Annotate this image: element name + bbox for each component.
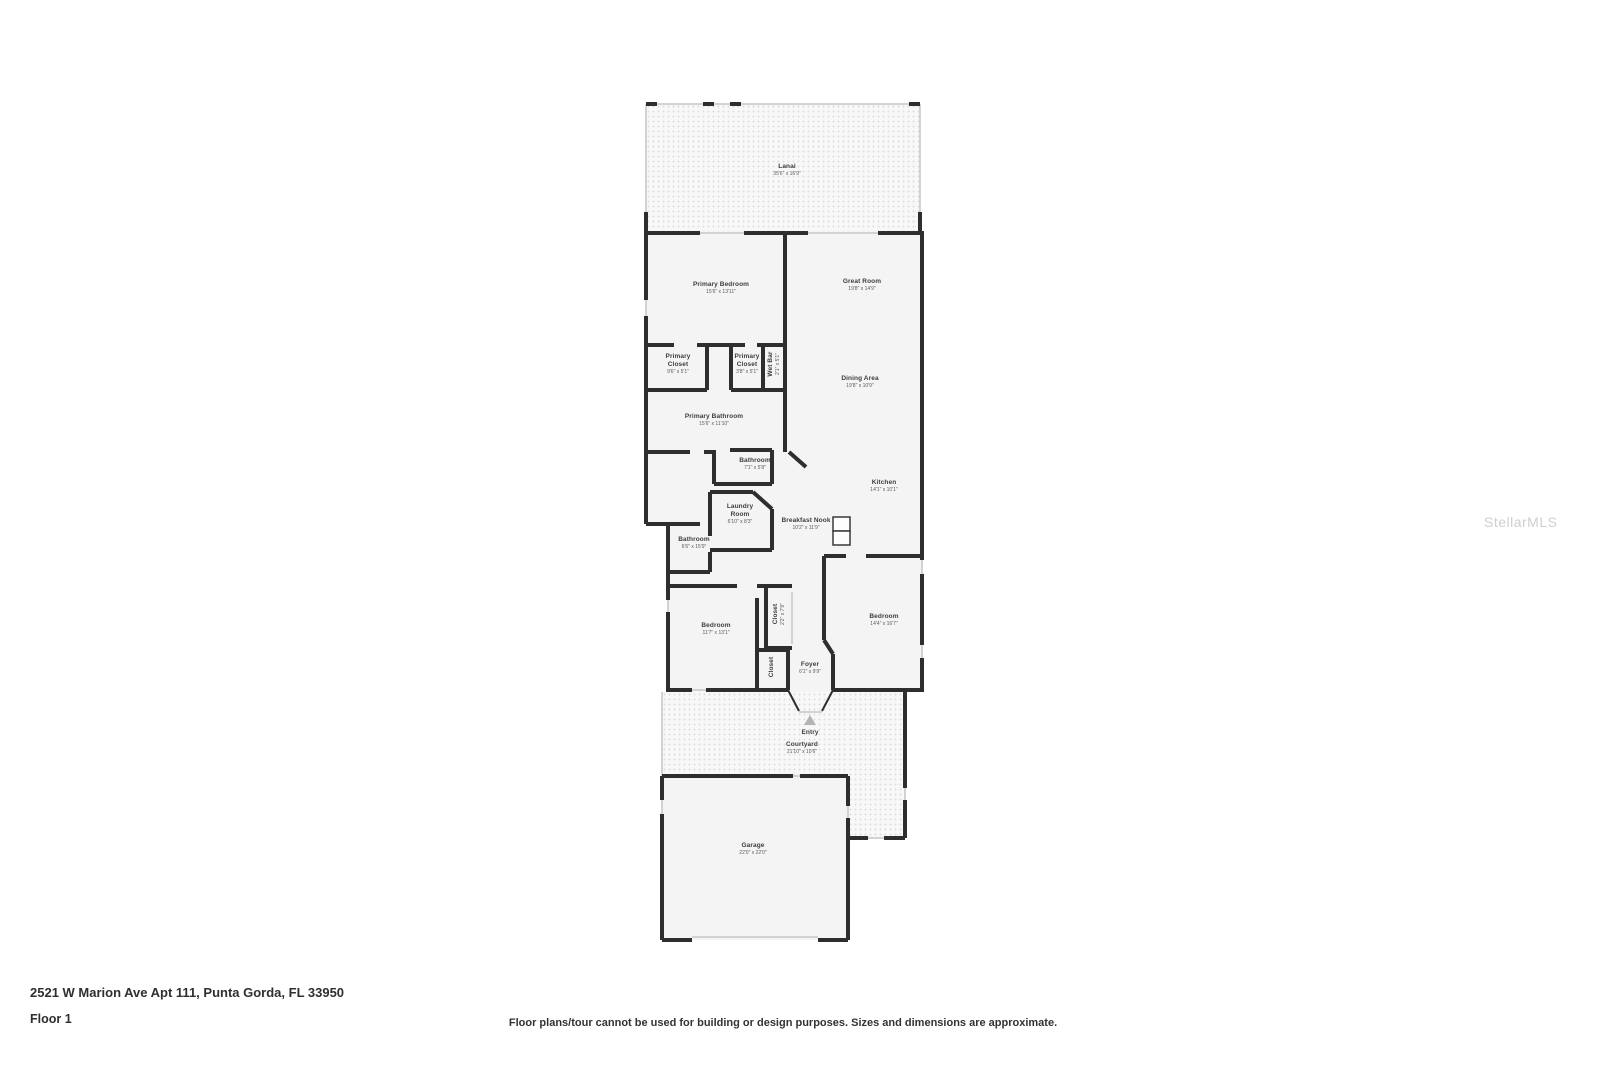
entry-marker-icon (804, 715, 816, 725)
room-label-bathroom-2: Bathroom 6'6" x 15'9" (678, 536, 710, 550)
room-dims: 19'8" x 10'9" (841, 384, 878, 390)
room-name: Primary Bathroom (685, 413, 743, 421)
room-dims: 35'6" x 16'9" (773, 172, 800, 178)
room-dims: 10'2" x 11'9" (781, 526, 830, 532)
floor-label: Floor 1 (30, 1012, 72, 1026)
floorplan-walls (0, 0, 1600, 1066)
room-name: Primary Bedroom (693, 281, 749, 289)
room-label-kitchen: Kitchen 14'1" x 10'1" (870, 479, 897, 493)
room-name: Bathroom (678, 536, 710, 544)
room-label-lanai: Lanai 35'6" x 16'9" (773, 163, 800, 177)
room-dims: 6'10" x 8'3" (723, 520, 757, 526)
room-name: Closet (768, 657, 776, 677)
room-name: Bedroom (701, 622, 730, 630)
room-dims: 11'7" x 13'1" (701, 631, 730, 637)
room-label-laundry-room: Laundry Room 6'10" x 8'3" (723, 503, 757, 525)
room-name: Great Room (843, 278, 881, 286)
room-name: Entry (801, 729, 818, 737)
floorplan-page: Lanai 35'6" x 16'9" Primary Bedroom 15'6… (0, 0, 1600, 1066)
room-dims: 2'1" x 5'1" (776, 351, 782, 376)
room-dims: 15'6" x 13'11" (693, 290, 749, 296)
room-dims: 6'6" x 15'9" (678, 545, 710, 551)
room-label-entry: Entry (801, 729, 818, 737)
room-name: Primary Closet (660, 353, 696, 369)
room-name: Courtyard (786, 741, 818, 749)
room-label-bathroom: Bathroom 7'1" x 5'8" (739, 457, 771, 471)
room-label-primary-closet-right: Primary Closet 3'8" x 5'1" (729, 353, 765, 375)
room-label-breakfast-nook: Breakfast Nook 10'2" x 11'9" (781, 517, 830, 531)
room-label-bedroom: Bedroom 11'7" x 13'1" (701, 622, 730, 636)
room-dims: 21'10" x 10'6" (786, 750, 818, 756)
room-label-dining-area: Dining Area 19'8" x 10'9" (841, 375, 878, 389)
room-name: Bathroom (739, 457, 771, 465)
room-dims: 7'1" x 5'8" (739, 466, 771, 472)
room-dims: 14'4" x 16'7" (869, 622, 898, 628)
room-name: Dining Area (841, 375, 878, 383)
room-name: Lanai (773, 163, 800, 171)
room-name: Garage (739, 842, 766, 850)
room-label-primary-bathroom: Primary Bathroom 15'6" x 11'10" (685, 413, 743, 427)
room-label-great-room: Great Room 19'8" x 14'9" (843, 278, 881, 292)
room-dims: 2'2" x 7'9" (781, 603, 787, 625)
room-dims: 9'6" x 5'1" (660, 370, 696, 376)
room-dims: 3'8" x 5'1" (729, 370, 765, 376)
room-label-garage: Garage 22'0" x 22'0" (739, 842, 766, 856)
room-name: Bedroom (869, 613, 898, 621)
room-label-closet-2: Closet (768, 657, 776, 677)
room-label-courtyard: Courtyard 21'10" x 10'6" (786, 741, 818, 755)
entry-door-leaves (788, 690, 833, 711)
room-dims: 15'6" x 11'10" (685, 422, 743, 428)
room-name: Laundry Room (723, 503, 757, 519)
room-name: Kitchen (870, 479, 897, 487)
room-dims: 22'0" x 22'0" (739, 851, 766, 857)
disclaimer-text: Floor plans/tour cannot be used for buil… (509, 1017, 1057, 1029)
room-dims: 19'8" x 14'9" (843, 287, 881, 293)
room-label-foyer: Foyer 6'1" x 9'9" (799, 661, 821, 675)
room-label-closet: Closet 2'2" x 7'9" (772, 603, 786, 625)
room-label-wet-bar: Wet Bar 2'1" x 5'1" (767, 351, 781, 376)
room-name: Primary Closet (729, 353, 765, 369)
kitchen-counter (833, 517, 850, 545)
room-name: Wet Bar (767, 351, 775, 376)
room-name: Foyer (799, 661, 821, 669)
room-name: Closet (772, 603, 780, 625)
room-label-bedroom-2: Bedroom 14'4" x 16'7" (869, 613, 898, 627)
room-label-primary-closet-left: Primary Closet 9'6" x 5'1" (660, 353, 696, 375)
room-name: Breakfast Nook (781, 517, 830, 525)
room-label-primary-bedroom: Primary Bedroom 15'6" x 13'11" (693, 281, 749, 295)
mls-watermark: StellarMLS (1484, 514, 1557, 530)
room-dims: 14'1" x 10'1" (870, 488, 897, 494)
property-address: 2521 W Marion Ave Apt 111, Punta Gorda, … (30, 985, 344, 1000)
room-dims: 6'1" x 9'9" (799, 670, 821, 676)
